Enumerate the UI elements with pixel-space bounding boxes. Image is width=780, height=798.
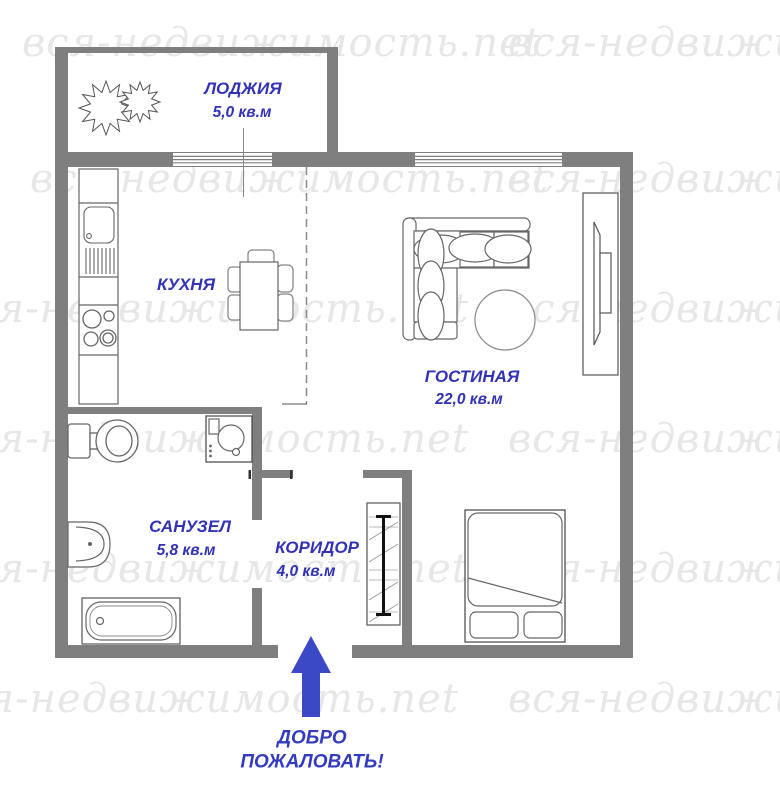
loggia-name-label: ЛОДЖИЯ <box>204 79 281 99</box>
living-area-label: 22,0 кв.м <box>435 391 502 409</box>
loggia-area-label: 5,0 кв.м <box>213 104 272 122</box>
welcome-line-1: ДОБРО <box>240 726 383 750</box>
floor-plan: вся-недвижимость.net вся-недвижимость.ne… <box>0 0 780 798</box>
welcome-line-2: ПОЖАЛОВАТЬ! <box>240 750 383 774</box>
kitchen-name-label: КУХНЯ <box>157 275 215 295</box>
welcome-label: ДОБРО ПОЖАЛОВАТЬ! <box>240 726 383 774</box>
labels-layer: ЛОДЖИЯ 5,0 кв.м КУХНЯ ГОСТИНАЯ 22,0 кв.м… <box>0 0 780 798</box>
bathroom-area-label: 5,8 кв.м <box>157 542 216 560</box>
corridor-area-label: 4,0 кв.м <box>277 563 336 581</box>
living-name-label: ГОСТИНАЯ <box>425 367 520 387</box>
bathroom-name-label: САНУЗЕЛ <box>149 517 231 537</box>
corridor-name-label: КОРИДОР <box>275 538 359 558</box>
